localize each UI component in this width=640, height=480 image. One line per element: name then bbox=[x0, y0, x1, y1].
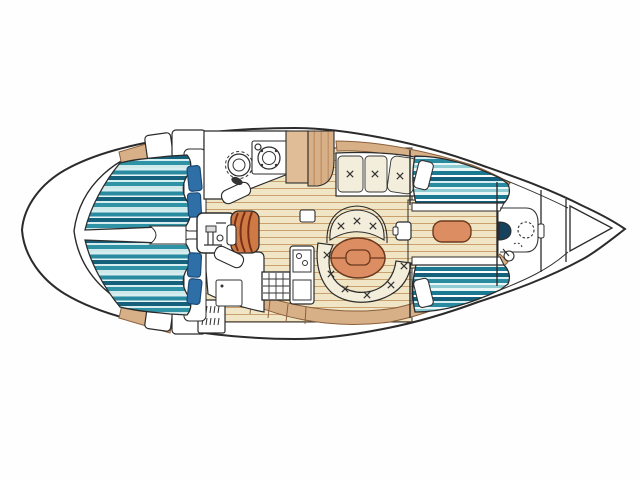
bulkhead-latch bbox=[538, 224, 544, 238]
forward-door-post bbox=[393, 222, 411, 240]
boat-floor-plan-canvas bbox=[0, 0, 640, 480]
galley-counter-right bbox=[290, 246, 314, 304]
salon-table bbox=[331, 238, 385, 278]
wardrobe-block bbox=[286, 131, 334, 186]
walkway-seat-cushion bbox=[433, 221, 471, 242]
icebox-lid bbox=[216, 280, 242, 306]
steps-handrail bbox=[227, 225, 236, 245]
fwd-berth-frame-top bbox=[412, 203, 504, 211]
sink-icon bbox=[252, 141, 287, 174]
fwd-berth-frame-bottom bbox=[412, 257, 504, 265]
galley-sink bbox=[293, 250, 311, 272]
mast-step-fitting bbox=[300, 210, 315, 222]
settee-cushion bbox=[365, 156, 387, 192]
boat-floor-plan bbox=[0, 0, 640, 480]
stove-icon bbox=[262, 272, 290, 300]
fridge-lid bbox=[293, 280, 311, 300]
